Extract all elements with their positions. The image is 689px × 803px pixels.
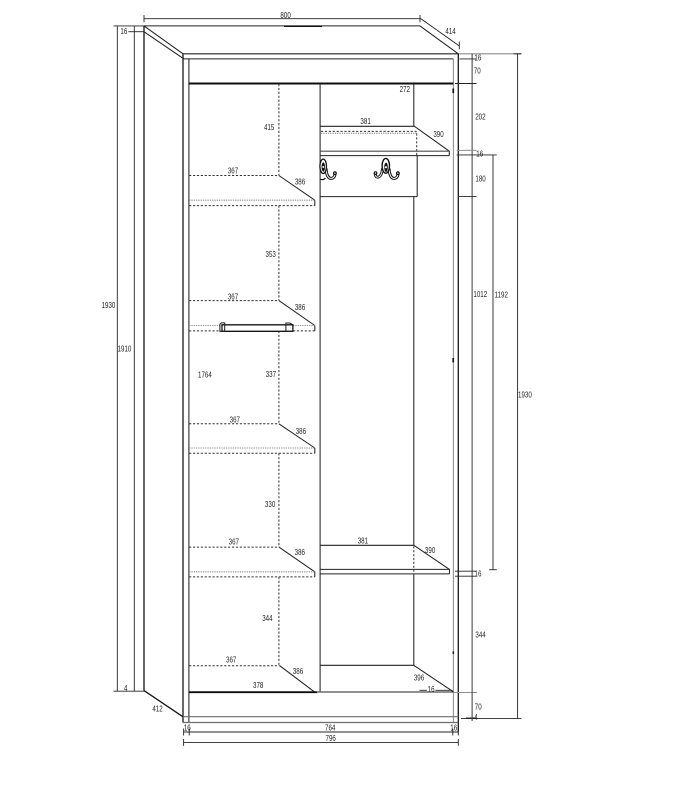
- svg-text:16: 16: [476, 148, 483, 158]
- svg-text:378: 378: [253, 680, 263, 690]
- svg-text:390: 390: [425, 545, 435, 555]
- svg-text:337: 337: [266, 369, 276, 379]
- svg-text:16: 16: [474, 52, 481, 62]
- svg-text:367: 367: [228, 292, 238, 302]
- svg-text:390: 390: [433, 129, 443, 139]
- svg-text:353: 353: [266, 249, 276, 259]
- svg-text:367: 367: [230, 414, 240, 424]
- svg-text:386: 386: [295, 176, 305, 186]
- svg-text:386: 386: [295, 302, 305, 312]
- svg-text:1012: 1012: [473, 289, 487, 299]
- svg-text:4: 4: [124, 683, 127, 693]
- svg-text:367: 367: [229, 537, 239, 547]
- svg-text:381: 381: [360, 116, 370, 126]
- svg-text:16: 16: [120, 26, 127, 36]
- svg-text:16: 16: [475, 568, 482, 578]
- svg-text:344: 344: [262, 613, 272, 623]
- svg-text:180: 180: [475, 173, 485, 183]
- svg-text:4: 4: [474, 712, 477, 722]
- svg-text:386: 386: [296, 426, 306, 436]
- svg-text:381: 381: [358, 535, 368, 545]
- svg-text:367: 367: [228, 165, 238, 175]
- svg-text:386: 386: [295, 547, 305, 557]
- svg-text:202: 202: [475, 111, 485, 121]
- svg-text:16: 16: [184, 722, 191, 732]
- svg-text:796: 796: [326, 733, 336, 743]
- svg-text:70: 70: [474, 65, 481, 75]
- svg-text:330: 330: [265, 499, 275, 509]
- svg-text:1764: 1764: [198, 369, 212, 379]
- svg-text:412: 412: [152, 703, 162, 713]
- svg-text:272: 272: [400, 84, 410, 94]
- svg-text:800: 800: [280, 10, 290, 20]
- svg-text:1192: 1192: [495, 290, 508, 300]
- svg-text:16: 16: [428, 684, 435, 694]
- svg-text:344: 344: [475, 630, 485, 640]
- svg-text:367: 367: [226, 654, 236, 664]
- svg-text:1910: 1910: [118, 343, 132, 353]
- svg-text:764: 764: [325, 722, 335, 732]
- svg-text:396: 396: [414, 673, 424, 683]
- svg-text:415: 415: [264, 122, 274, 132]
- svg-text:70: 70: [475, 702, 482, 712]
- svg-text:414: 414: [445, 26, 455, 36]
- svg-text:16: 16: [450, 723, 457, 733]
- svg-text:386: 386: [293, 666, 303, 676]
- svg-text:1930: 1930: [518, 390, 532, 400]
- svg-text:1930: 1930: [102, 300, 116, 310]
